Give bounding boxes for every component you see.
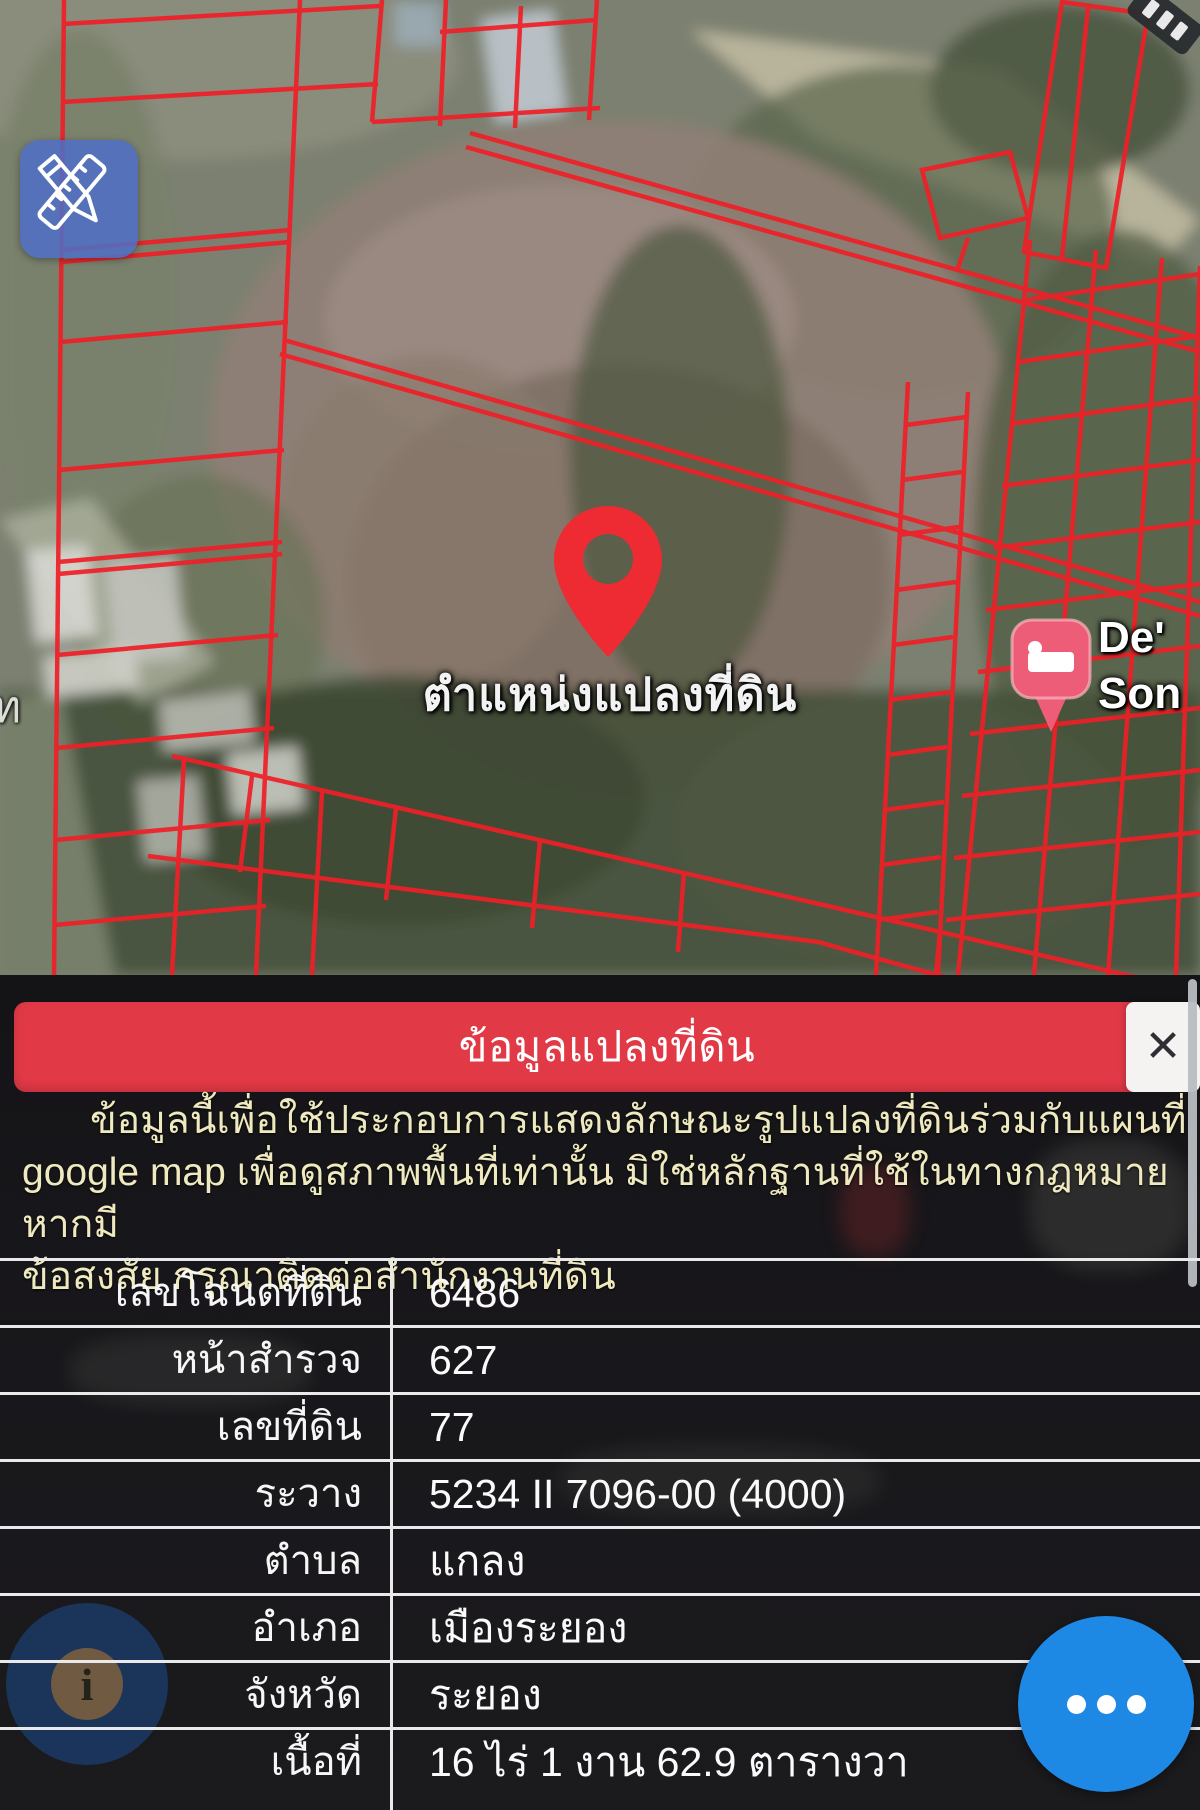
edit-tool-button[interactable]	[20, 140, 138, 258]
disclaimer-line: ข้อมูลนี้เพื่อใช้ประกอบการแสดงลักษณะรูปแ…	[22, 1095, 1192, 1147]
row-value: 627	[390, 1328, 1200, 1392]
ellipsis-icon	[1097, 1695, 1116, 1714]
table-row: ระวาง 5234 II 7096-00 (4000)	[0, 1459, 1200, 1526]
row-value: แกลง	[390, 1529, 1200, 1593]
row-label: เลขที่ดิน	[0, 1395, 390, 1459]
table-row: อำเภอ เมืองระยอง	[0, 1593, 1200, 1660]
row-label: เนื้อที่	[0, 1730, 390, 1794]
row-value: 5234 II 7096-00 (4000)	[390, 1462, 1200, 1526]
table-row: ตำบล แกลง	[0, 1526, 1200, 1593]
row-label: ตำบล	[0, 1529, 390, 1593]
lodging-label-line1: De'	[1098, 610, 1200, 666]
table-row: หน้าสำรวจ 627	[0, 1325, 1200, 1392]
row-label: จังหวัด	[0, 1663, 390, 1727]
ellipsis-icon	[1127, 1695, 1146, 1714]
disclaimer-line: google map เพื่อดูสภาพพื้นที่เท่านั้น มิ…	[22, 1147, 1192, 1251]
parcel-table: เลขโฉนดที่ดิน 6486 หน้าสำรวจ 627 เลขที่ด…	[0, 1258, 1200, 1810]
row-label: เลขโฉนดที่ดิน	[0, 1261, 390, 1325]
ellipsis-icon	[1067, 1695, 1086, 1714]
parcel-info-sheet: ข้อมูลแปลงที่ดิน ✕ ข้อมูลนี้เพื่อใช้ประก…	[0, 975, 1200, 1810]
row-value: 77	[390, 1395, 1200, 1459]
row-label: ระวาง	[0, 1462, 390, 1526]
lodging-label-line2: Son	[1098, 666, 1200, 722]
close-icon: ✕	[1145, 1025, 1182, 1069]
table-row-partial	[0, 1794, 1200, 1810]
more-options-button[interactable]	[1018, 1616, 1194, 1792]
lodging-poi-label[interactable]: De' Son	[1098, 610, 1200, 722]
table-row: เลขที่ดิน 77	[0, 1392, 1200, 1459]
table-row: เนื้อที่ 16 ไร่ 1 งาน 62.9 ตารางวา	[0, 1727, 1200, 1794]
row-value: 6486	[390, 1261, 1200, 1325]
pencil-ruler-icon	[20, 140, 124, 244]
row-label: หน้าสำรวจ	[0, 1328, 390, 1392]
map-art	[0, 0, 1200, 975]
satellite-map[interactable]: ตำแหน่งแปลงที่ดิน De' Son ท	[0, 0, 1200, 975]
row-label: อำเภอ	[0, 1596, 390, 1660]
partial-road-label: ท	[0, 672, 21, 742]
table-row: เลขโฉนดที่ดิน 6486	[0, 1258, 1200, 1325]
sheet-header: ข้อมูลแปลงที่ดิน ✕	[14, 1002, 1200, 1092]
pin-label: ตำแหน่งแปลงที่ดิน	[300, 658, 920, 730]
sheet-title: ข้อมูลแปลงที่ดิน	[459, 1014, 756, 1080]
